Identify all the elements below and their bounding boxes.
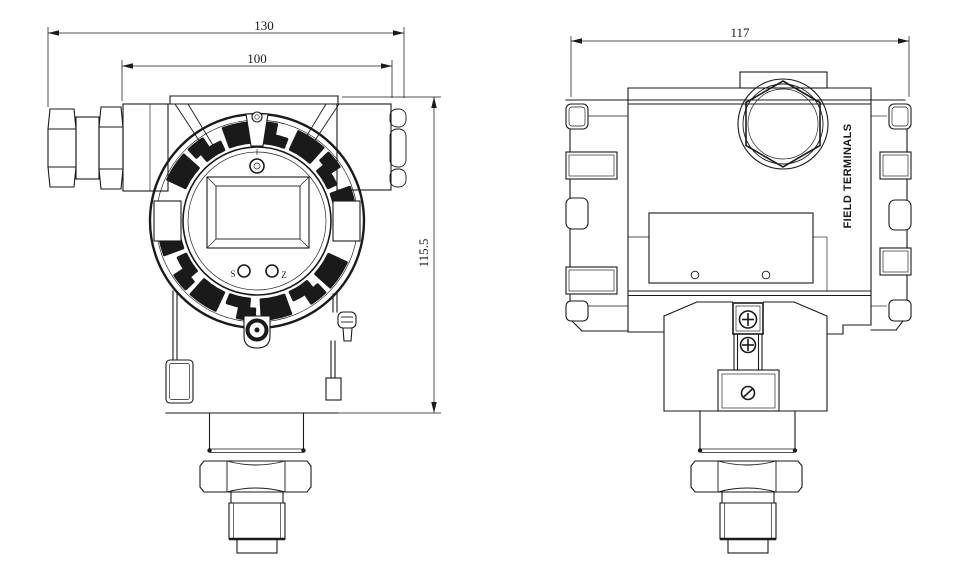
zero-button[interactable] — [238, 265, 250, 277]
bezel-boss-right — [333, 201, 360, 241]
cover-lock-tab — [244, 316, 270, 348]
process-connection-side — [691, 411, 802, 553]
ground-lug-bracket — [166, 291, 193, 403]
process-connection — [200, 413, 311, 553]
conduit-hex-plug — [738, 72, 828, 169]
side-housing-body — [628, 88, 871, 334]
span-button[interactable] — [266, 265, 278, 277]
lcd-display — [207, 177, 309, 248]
dimension-overall-width-130: 130 — [48, 18, 404, 107]
technical-drawing-page: 130 100 115.5 — [0, 0, 970, 577]
dim-label-130: 130 — [254, 18, 274, 33]
window-retainer-screw — [250, 149, 264, 173]
dimension-body-width-100: 100 — [122, 51, 392, 101]
side-view: 117 FIELD TERMINALS — [566, 25, 911, 553]
nameplate-screw-hole — [762, 271, 770, 279]
cover-ribs-left — [566, 100, 628, 331]
housing-left-block — [123, 104, 168, 191]
field-terminals-label: FIELD TERMINALS — [842, 124, 854, 229]
button-label-s: S — [230, 269, 235, 279]
pressure-transmitter-drawing: 130 100 115.5 — [0, 0, 970, 577]
bezel-boss-left — [154, 201, 181, 241]
housing-right-block — [337, 104, 391, 190]
dim-label-100: 100 — [247, 51, 267, 66]
rear-cover-knurl — [390, 109, 406, 187]
cover-ribs-right — [871, 100, 911, 330]
nameplate-screw-hole — [691, 271, 699, 279]
cable-gland — [48, 107, 123, 189]
ground-terminal-assembly — [718, 303, 779, 411]
dim-label-117: 117 — [730, 25, 750, 40]
cover-lock-screw — [326, 294, 356, 400]
dimension-body-height-115-5: 115.5 — [337, 97, 441, 413]
dim-label-115-5: 115.5 — [416, 239, 431, 268]
front-view: 130 100 115.5 — [48, 18, 441, 553]
nameplate — [628, 213, 827, 291]
button-label-z: Z — [281, 270, 287, 280]
